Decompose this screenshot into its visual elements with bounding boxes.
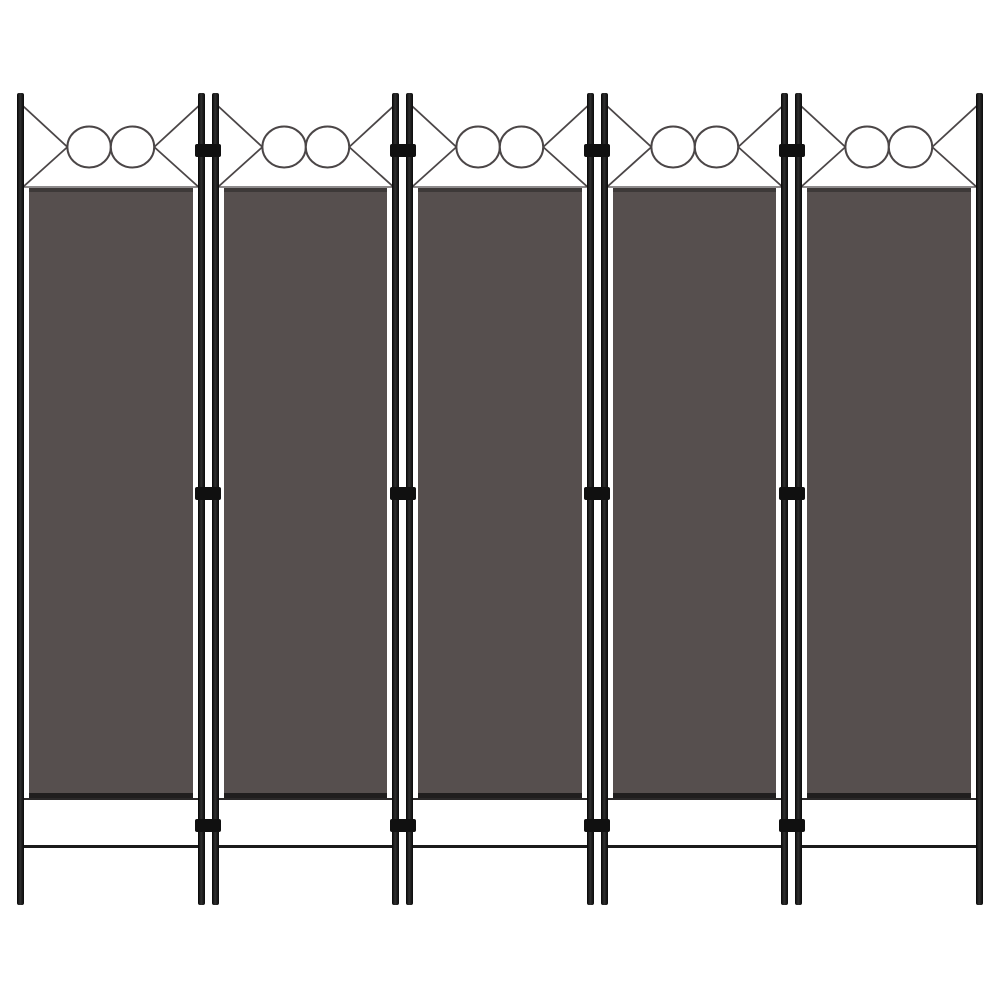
- decoration-wire: [933, 147, 977, 187]
- panel-fabric: [613, 188, 777, 800]
- decoration-circle: [846, 127, 889, 168]
- decoration-wire: [23, 147, 67, 187]
- divider-panel-3: [406, 93, 594, 905]
- decoration-wire: [543, 106, 587, 147]
- decoration-circle: [305, 127, 348, 168]
- junction-hinge: [779, 144, 805, 157]
- panel-bottom-rail: [605, 798, 785, 800]
- panel-fabric: [418, 188, 582, 800]
- junction-hinge: [195, 487, 221, 500]
- decoration-circle: [111, 127, 154, 168]
- junction-hinge: [584, 487, 610, 500]
- panel-leg-stretcher: [797, 845, 981, 848]
- junction-hinge: [195, 144, 221, 157]
- decoration-circle: [889, 127, 932, 168]
- panel-bottom-rail: [21, 798, 201, 800]
- decoration-wire: [412, 106, 456, 147]
- panel-fabric: [224, 188, 388, 800]
- junction-hinge: [779, 819, 805, 832]
- divider-panel-4: [601, 93, 789, 905]
- panel-right-pole: [976, 93, 983, 905]
- decoration-wire: [412, 147, 456, 187]
- decoration-circle: [262, 127, 305, 168]
- panel-top-decoration: [795, 93, 983, 188]
- decoration-wire: [218, 147, 262, 187]
- decoration-circle: [651, 127, 694, 168]
- panel-bottom-rail: [799, 798, 979, 800]
- panel-bottom-rail: [410, 798, 590, 800]
- panel-top-decoration: [17, 93, 205, 188]
- decoration-wire: [738, 106, 782, 147]
- junction-hinge: [390, 819, 416, 832]
- decoration-wire: [607, 147, 651, 187]
- panel-top-decoration: [212, 93, 400, 188]
- room-divider: [17, 93, 983, 905]
- panel-top-decoration: [406, 93, 594, 188]
- panel-top-decoration: [601, 93, 789, 188]
- panel-leg-stretcher: [603, 845, 787, 848]
- decoration-circle: [500, 127, 543, 168]
- decoration-wire: [218, 106, 262, 147]
- decoration-circle: [695, 127, 738, 168]
- junction-hinge: [779, 487, 805, 500]
- decoration-wire: [154, 147, 198, 187]
- decoration-wire: [607, 106, 651, 147]
- panel-fabric: [29, 188, 193, 800]
- divider-panel-2: [212, 93, 400, 905]
- junction-hinge: [390, 487, 416, 500]
- divider-panel-1: [17, 93, 205, 905]
- panel-leg-stretcher: [19, 845, 203, 848]
- decoration-wire: [543, 147, 587, 187]
- decoration-circle: [457, 127, 500, 168]
- panel-bottom-rail: [216, 798, 396, 800]
- product-photo: [0, 0, 1000, 1000]
- decoration-wire: [801, 106, 845, 147]
- decoration-wire: [933, 106, 977, 147]
- panel-fabric: [807, 188, 971, 800]
- junction-hinge: [390, 144, 416, 157]
- decoration-circle: [67, 127, 110, 168]
- decoration-wire: [349, 106, 393, 147]
- junction-hinge: [584, 819, 610, 832]
- junction-hinge: [584, 144, 610, 157]
- junction-hinge: [195, 819, 221, 832]
- decoration-wire: [349, 147, 393, 187]
- panel-left-pole: [17, 93, 24, 905]
- decoration-wire: [738, 147, 782, 187]
- divider-panel-5: [795, 93, 983, 905]
- decoration-wire: [154, 106, 198, 147]
- decoration-wire: [801, 147, 845, 187]
- decoration-wire: [23, 106, 67, 147]
- panel-leg-stretcher: [408, 845, 592, 848]
- panel-leg-stretcher: [214, 845, 398, 848]
